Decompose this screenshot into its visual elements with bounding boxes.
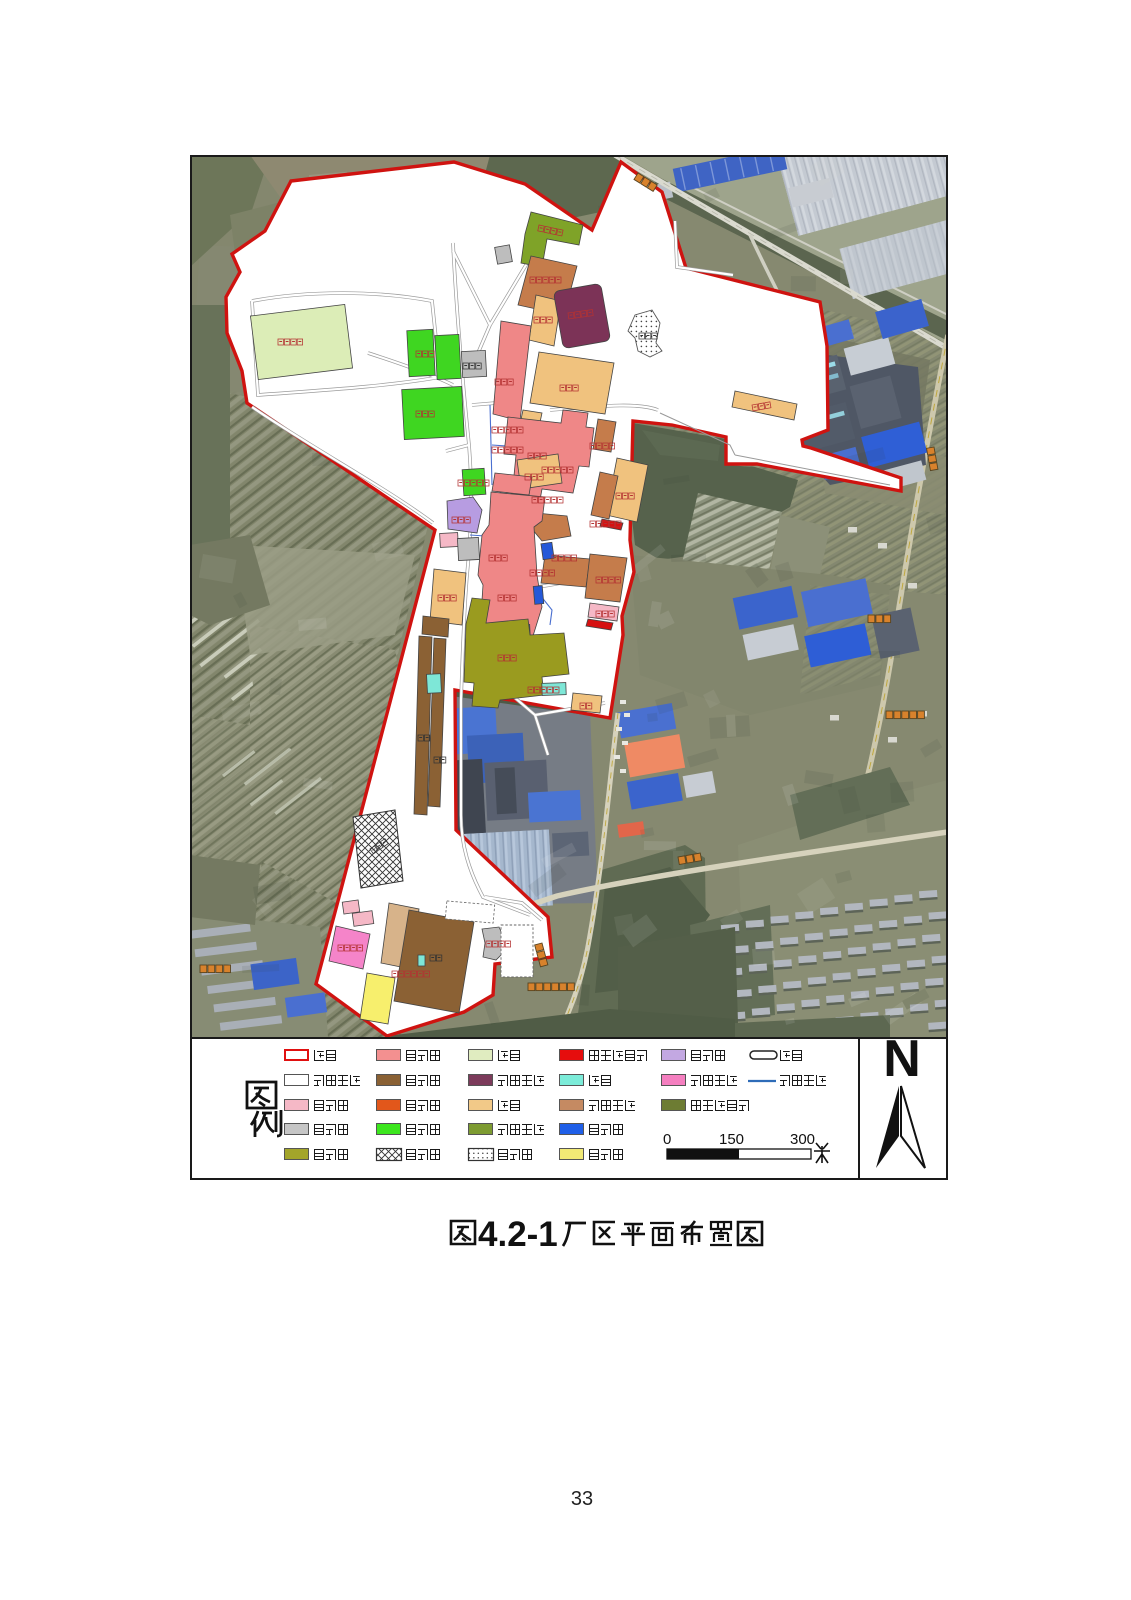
svg-text:4.2-1: 4.2-1 [478,1216,558,1252]
